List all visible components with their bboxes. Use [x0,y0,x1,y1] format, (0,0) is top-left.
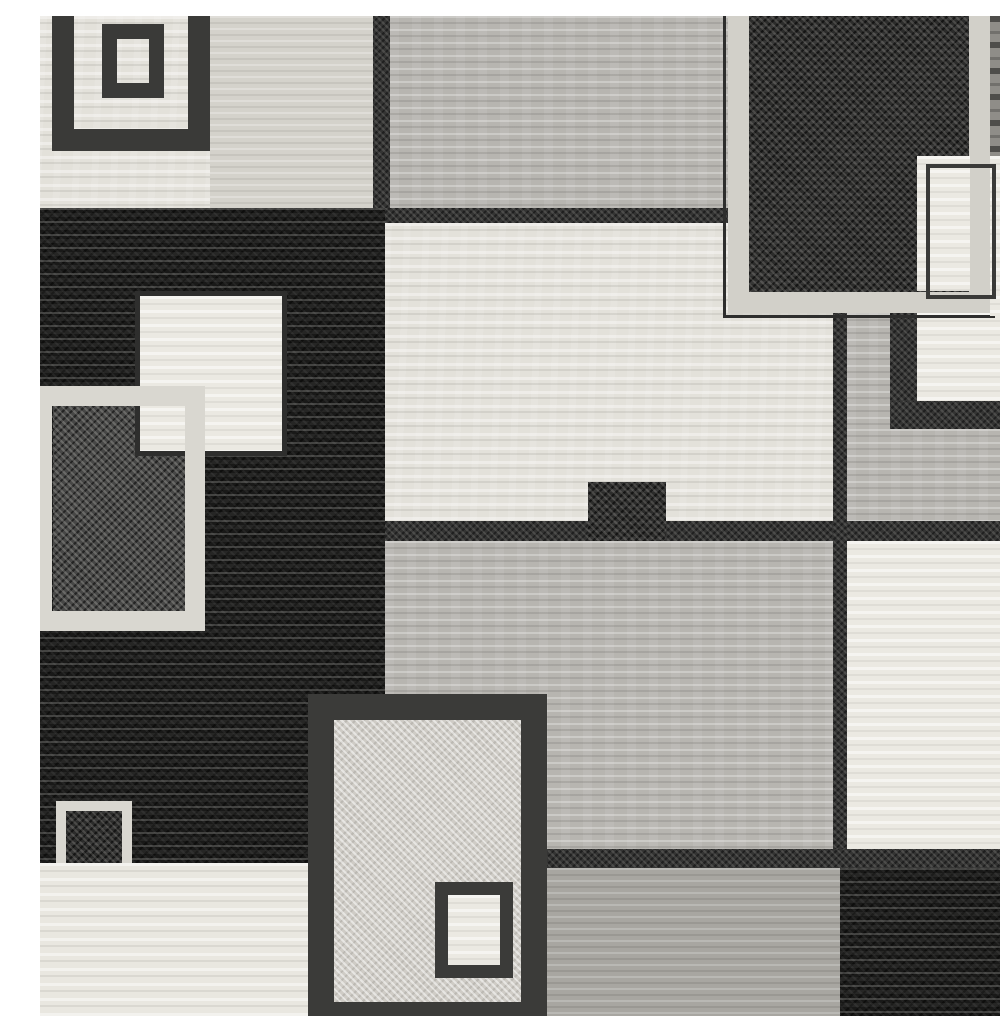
right-gray-block [847,429,1000,523]
top-left-greige-block [210,16,385,210]
top-left-inner-square-frame [102,24,164,98]
top-right-corner-gray [990,16,1000,156]
top-center-dark-rule [385,208,730,223]
bottom-right-black-block [840,868,1000,1016]
right-white-field [847,541,1000,851]
mid-dark-stripe [385,521,1000,541]
right-white-patch [917,313,1000,403]
left-white-square-frame [40,386,205,631]
rug-product-photo [40,16,1000,1016]
bottom-left-cream-field [40,863,308,1016]
top-center-gray-block [390,16,730,212]
top-left-vertical-divider [373,16,390,212]
right-gray-bar [847,313,892,433]
bottom-taupe-field [543,868,840,1016]
bottom-center-inner-square [435,882,513,978]
top-right-thin-outline-square [926,164,996,299]
bottom-dark-stripe [543,849,1000,868]
right-dark-band [890,401,1000,431]
right-vertical-divider [833,311,847,853]
